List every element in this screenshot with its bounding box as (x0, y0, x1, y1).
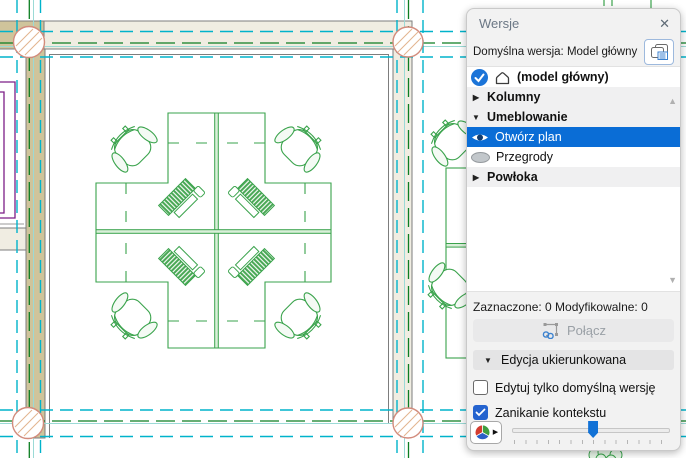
office-chair[interactable] (270, 115, 332, 177)
desk-cluster[interactable] (96, 113, 332, 350)
chevron-down-icon[interactable]: ▼ (471, 113, 481, 122)
targeted-editing-label: Edycja ukierunkowana (501, 353, 626, 367)
chevron-down-icon[interactable]: ▼ (483, 356, 493, 365)
slider-ticks (514, 440, 670, 444)
graphics-mode-button[interactable]: ▶ (470, 421, 502, 444)
chevron-right-icon[interactable]: ▶ (471, 173, 481, 182)
color-wheel-icon (474, 424, 491, 441)
chevron-right-icon[interactable]: ▶ (471, 93, 481, 102)
panel-bottom-row: ▶ (467, 420, 680, 450)
category-label: Kolumny (487, 90, 540, 104)
versions-panel: Wersje ✕ Domyślna wersja: Model główny (466, 8, 681, 451)
default-version-label: Domyślna wersja: Model główny (473, 46, 640, 58)
context-fade-checkbox-row[interactable]: Zanikanie kontekstu (473, 405, 674, 420)
edit-default-version-checkbox-row[interactable]: Edytuj tylko domyślną wersję (473, 380, 674, 395)
panel-title: Wersje (479, 16, 659, 31)
option-row-otworz-plan[interactable]: Otwórz plan (467, 127, 680, 147)
option-row-przegrody[interactable]: Przegrody (467, 147, 680, 167)
eye-hidden-icon[interactable] (471, 152, 490, 163)
checkbox-unchecked[interactable] (473, 380, 488, 395)
transfer-versions-icon (649, 43, 669, 61)
version-row-label: (model główny) (517, 70, 609, 84)
scroll-down-icon[interactable]: ▼ (668, 276, 677, 285)
window-element[interactable] (0, 82, 15, 218)
default-version-row: Domyślna wersja: Model główny (467, 37, 680, 67)
model-icon (494, 70, 511, 85)
checkbox-label: Zanikanie kontekstu (495, 406, 606, 420)
office-chair[interactable] (100, 115, 162, 177)
checked-circle-icon[interactable] (471, 69, 488, 86)
checkbox-checked[interactable] (473, 405, 488, 420)
connect-button[interactable]: Połącz (473, 319, 674, 342)
slider-thumb[interactable] (588, 421, 598, 438)
context-fade-slider[interactable] (512, 420, 674, 444)
office-chair[interactable] (100, 288, 162, 350)
application-window: Wersje ✕ Domyślna wersja: Model główny (0, 0, 686, 458)
scroll-up-icon[interactable]: ▲ (668, 97, 677, 106)
transfer-versions-button[interactable] (644, 39, 674, 65)
panel-header: Wersje ✕ (467, 9, 680, 37)
chain-link-icon (541, 322, 560, 339)
close-icon[interactable]: ✕ (659, 16, 670, 32)
version-row-main-model[interactable]: (model główny) (467, 67, 680, 87)
category-label: Umeblowanie (487, 110, 568, 124)
option-label: Otwórz plan (495, 130, 562, 144)
selection-status: Zaznaczone: 0 Modyfikowalne: 0 (473, 300, 674, 314)
option-label: Przegrody (496, 150, 553, 164)
office-chair[interactable] (270, 288, 332, 350)
versions-list: (model główny) ▶ Kolumny ▼ Umeblowanie O… (467, 66, 680, 292)
hidden-geometry-fragments (604, 0, 651, 8)
category-row-kolumny[interactable]: ▶ Kolumny (467, 87, 680, 107)
connect-button-label: Połącz (567, 323, 606, 338)
checkbox-label: Edytuj tylko domyślną wersję (495, 381, 655, 395)
targeted-editing-header[interactable]: ▼ Edycja ukierunkowana (473, 350, 674, 370)
eye-visible-icon[interactable] (471, 131, 489, 144)
category-row-powloka[interactable]: ▶ Powłoka (467, 167, 680, 187)
flyout-arrow-icon: ▶ (493, 428, 498, 436)
category-row-umeblowanie[interactable]: ▼ Umeblowanie (467, 107, 680, 127)
category-label: Powłoka (487, 170, 538, 184)
check-icon (475, 408, 486, 417)
